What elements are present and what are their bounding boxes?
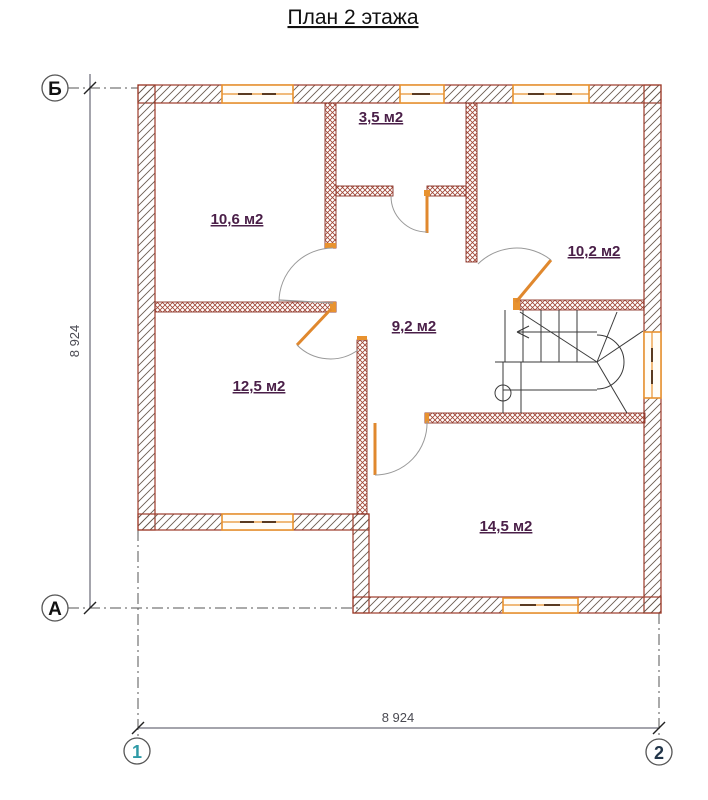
axis-marker-2: 2 — [646, 739, 672, 765]
window-bottom-left — [222, 514, 293, 530]
partition-wall — [427, 186, 466, 196]
partition-wall — [520, 300, 644, 310]
wall-end-cap — [325, 243, 336, 248]
svg-text:А: А — [48, 599, 62, 620]
partition-wall — [357, 340, 367, 514]
floor-plan-page: План 2 этажа 8 924 8 924 — [0, 0, 708, 800]
wall-end-cap — [357, 336, 367, 340]
svg-text:1: 1 — [132, 742, 142, 762]
room-label-9-2: 9,2 м2 — [392, 318, 436, 335]
staircase — [495, 310, 643, 413]
wall-end-cap — [424, 190, 430, 196]
exterior-wall-left — [138, 85, 155, 530]
room-label-3-5: 3,5 м2 — [359, 109, 403, 126]
partition-wall — [336, 186, 393, 196]
partition-wall — [425, 413, 645, 423]
partition-wall — [155, 302, 336, 312]
door-room-10-2 — [478, 248, 551, 302]
window-bottom — [503, 598, 578, 613]
window-top-3 — [513, 85, 589, 103]
room-label-12-5: 12,5 м2 — [233, 378, 286, 395]
window-top-2 — [400, 85, 444, 103]
door-room-10-6 — [279, 248, 333, 303]
room-label-14-5: 14,5 м2 — [480, 518, 533, 535]
door-room-14-5 — [375, 421, 427, 475]
partition-wall — [325, 103, 336, 248]
partition-wall — [466, 103, 477, 262]
window-right — [644, 332, 661, 398]
axis-marker-1: 1 — [124, 738, 150, 764]
floor-plan-drawing: План 2 этажа 8 924 8 924 — [0, 0, 708, 800]
page-title: План 2 этажа — [287, 6, 418, 29]
dimension-value-left: 8 924 — [67, 325, 82, 358]
door-room-12-5 — [297, 309, 358, 359]
axis-marker-B: Б — [42, 75, 68, 101]
dimension-value-bottom: 8 924 — [382, 710, 415, 725]
room-label-10-6: 10,6 м2 — [211, 211, 264, 228]
svg-text:Б: Б — [48, 79, 62, 100]
window-top-1 — [222, 85, 293, 103]
room-label-10-2: 10,2 м2 — [568, 243, 621, 260]
door-room-3-5 — [391, 196, 427, 233]
axis-marker-A: А — [42, 595, 68, 621]
svg-text:2: 2 — [654, 743, 664, 763]
